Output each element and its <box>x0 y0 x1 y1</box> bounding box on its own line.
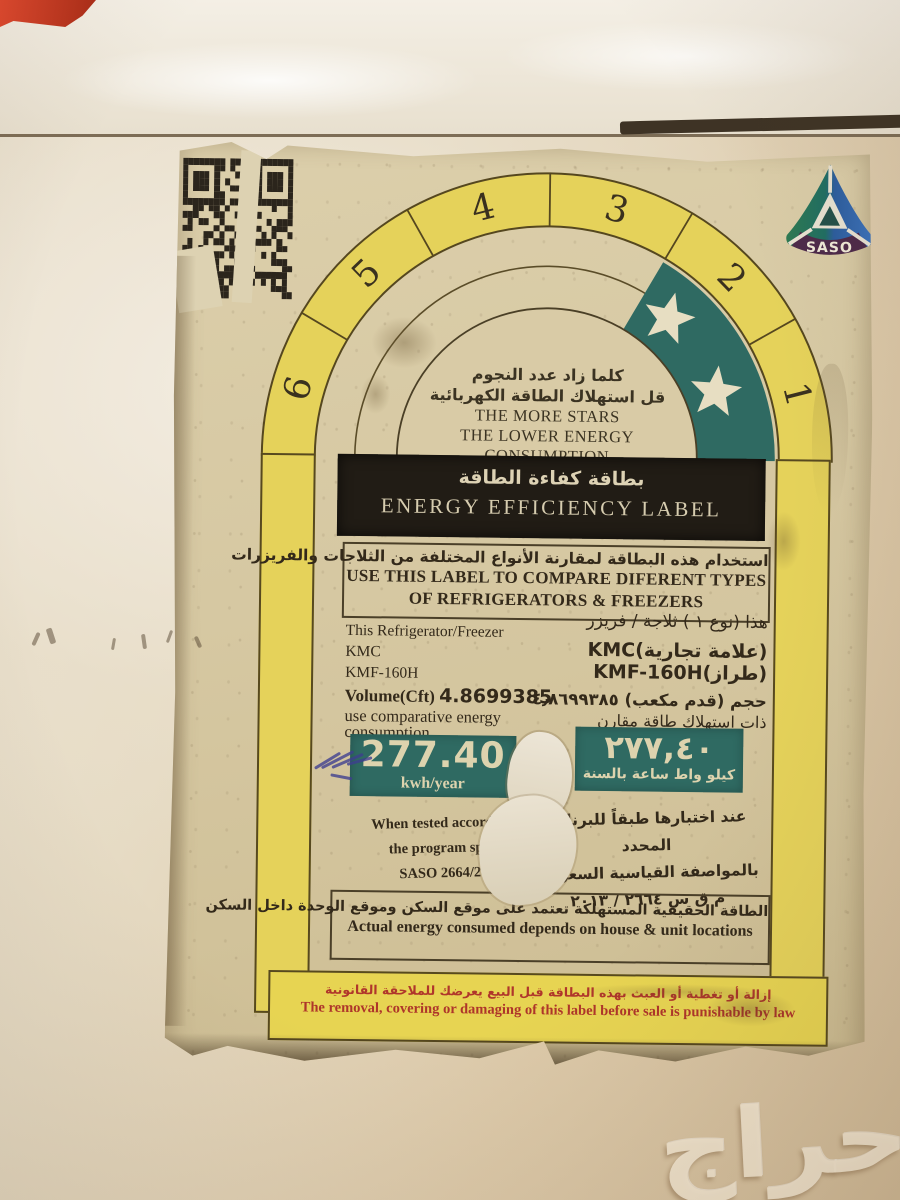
actual-text-en: Actual energy consumed depends on house … <box>332 918 768 941</box>
saso-logo: SASO <box>782 159 877 274</box>
energy-efficiency-label: 6 5 4 3 2 1 SASO <box>164 136 875 1071</box>
label-title-banner: بطاقة كفاءة الطاقة ENERGY EFFICIENCY LAB… <box>337 454 766 541</box>
model-en: KMF-160H <box>345 664 418 683</box>
volume-ar: حجم (قدم مكعب) ٤٫٨٦٩٩٣٨٥ <box>532 689 767 711</box>
energy-unit-ar: كيلو واط ساعة بالسنة <box>575 765 743 785</box>
volume-en: Volume(Cft) 4.8699385 <box>345 684 553 709</box>
brand-en: KMC <box>345 643 381 661</box>
photo-of-freezer: 6 5 4 3 2 1 SASO <box>0 0 900 1200</box>
haraj-watermark: حراج <box>656 1080 900 1200</box>
scuff-marks <box>20 624 240 684</box>
actual-text-ar: الطاقة الحقيقية المستهلكة تعتمد على موقع… <box>332 899 768 920</box>
yellow-frame-right <box>769 459 831 1020</box>
freezer-lid-edge <box>0 0 900 137</box>
yellow-frame-left <box>254 453 316 1014</box>
saso-logo-text: SASO <box>806 240 853 257</box>
model-ar: KMF-160H(طراز) <box>593 661 767 685</box>
product-type-ar: هذا (نوع ١ ) ثلاجة / فريزر <box>586 611 767 633</box>
brand-ar: KMC(علامة تجارية) <box>587 639 767 663</box>
legal-text-en: The removal, covering or damaging of thi… <box>270 999 826 1023</box>
lid-seam <box>620 114 900 134</box>
label-title-ar: بطاقة كفاءة الطاقة <box>337 465 765 492</box>
tagline-ar-2: قل استهلاك الطاقة الكهربائية <box>397 383 697 408</box>
label-title-en: ENERGY EFFICIENCY LABEL <box>337 493 765 523</box>
pen-scribble <box>318 740 379 785</box>
product-info-en: This Refrigerator/Freezer KMC KMF-160H V… <box>344 622 545 744</box>
product-type-en: This Refrigerator/Freezer <box>346 622 504 642</box>
volume-label: Volume(Cft) <box>345 686 435 706</box>
actual-consumption-box: الطاقة الحقيقية المستهلكة تعتمد على موقع… <box>330 890 771 965</box>
energy-value-ar: ٢٧٧,٤٠ <box>575 729 743 767</box>
tagline: كلما زاد عدد النجوم قل استهلاك الطاقة ال… <box>397 362 698 468</box>
energy-value-box-ar: ٢٧٧,٤٠ كيلو واط ساعة بالسنة <box>575 727 744 793</box>
product-info-ar: هذا (نوع ١ ) ثلاجة / فريزر KMC(علامة تجا… <box>536 610 768 741</box>
